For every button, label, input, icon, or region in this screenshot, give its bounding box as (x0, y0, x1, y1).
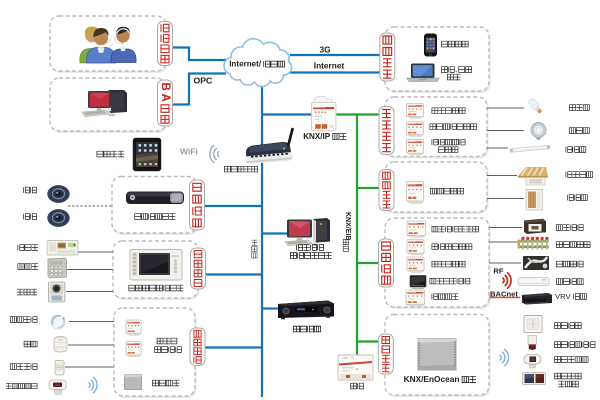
svg-text:RF: RF (493, 266, 503, 275)
svg-text:OPC: OPC (194, 75, 214, 85)
svg-text:KNX/EnOcean: KNX/EnOcean (404, 374, 462, 384)
svg-text:Internet/: Internet/ (229, 60, 263, 69)
svg-text:B: B (159, 83, 171, 91)
svg-text:KNX/EIB: KNX/EIB (344, 212, 351, 240)
svg-text:3G: 3G (320, 45, 331, 55)
svg-text:Internet: Internet (314, 61, 345, 71)
svg-text:KNX/IP: KNX/IP (303, 132, 332, 141)
svg-text:BACnet: BACnet (490, 289, 518, 298)
svg-text:VRV: VRV (555, 292, 573, 301)
svg-text:A: A (159, 93, 171, 101)
svg-text:WiFi: WiFi (180, 147, 198, 157)
